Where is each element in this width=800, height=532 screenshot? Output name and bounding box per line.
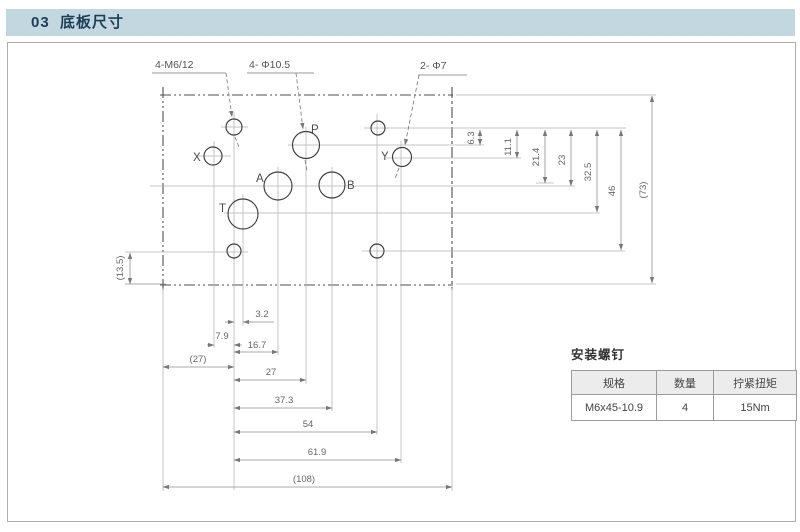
mounting-screw-title: 安装螺钉	[571, 344, 797, 363]
dim-7-9: 7.9	[215, 331, 228, 342]
dim-13-5: (13.5)	[115, 256, 126, 281]
table-header-row: 规格 数量 拧紧扭矩	[572, 371, 797, 395]
dimensions-bottom	[163, 322, 452, 487]
hole-y	[393, 148, 412, 167]
dim-46: 46	[607, 186, 618, 197]
callout-d10-5: 4- Φ10.5	[249, 59, 290, 71]
dimension-left	[125, 253, 166, 284]
dim-32-5: 32.5	[583, 163, 594, 182]
mounting-screw-table: 规格 数量 拧紧扭矩 M6x45-10.9 4 15Nm	[571, 370, 797, 421]
dim-108: (108)	[293, 474, 315, 485]
dim-73: (73)	[638, 182, 649, 199]
callout-m6: 4-M6/12	[155, 59, 194, 71]
cell-qty: 4	[657, 395, 714, 421]
mounting-screw-section: 安装螺钉 规格 数量 拧紧扭矩 M6x45-10.9 4 15Nm	[571, 344, 797, 421]
dim-61-9: 61.9	[308, 447, 327, 458]
dim-3-2: 3.2	[255, 309, 268, 320]
port-label-b: B	[347, 180, 355, 192]
port-label-p: P	[311, 124, 319, 136]
dim-27: 27	[266, 367, 277, 378]
baseplate-drawing: P X Y A B T 4-M6/12 4- Φ10.5 2- Φ7 6.3 1…	[0, 0, 800, 532]
port-labels: P X Y A B T	[193, 124, 389, 215]
table-row: M6x45-10.9 4 15Nm	[572, 395, 797, 421]
callout-labels: 4-M6/12 4- Φ10.5 2- Φ7	[155, 59, 447, 72]
header-torque: 拧紧扭矩	[714, 371, 797, 395]
dim-27p: (27)	[190, 354, 207, 365]
plate-outline	[160, 87, 453, 290]
dim-11-1: 11.1	[503, 138, 514, 156]
dimensions-right	[480, 96, 652, 283]
port-label-x: X	[193, 152, 201, 164]
holes	[204, 119, 412, 258]
dim-23: 23	[557, 155, 568, 166]
callout-d7: 2- Φ7	[420, 60, 447, 72]
dim-6-3: 6.3	[466, 131, 477, 144]
cell-spec: M6x45-10.9	[572, 395, 657, 421]
dim-16-7: 16.7	[248, 340, 267, 351]
dimension-texts-right: 6.3 11.1 21.4 23 32.5 46 (73)	[466, 131, 649, 198]
cell-torque: 15Nm	[714, 395, 797, 421]
dim-21-4: 21.4	[531, 148, 542, 167]
port-label-y: Y	[381, 151, 389, 163]
dim-37-3: 37.3	[275, 395, 294, 406]
port-label-t: T	[219, 203, 226, 215]
header-spec: 规格	[572, 371, 657, 395]
dim-54: 54	[303, 419, 314, 430]
header-qty: 数量	[657, 371, 714, 395]
port-label-a: A	[256, 173, 264, 185]
